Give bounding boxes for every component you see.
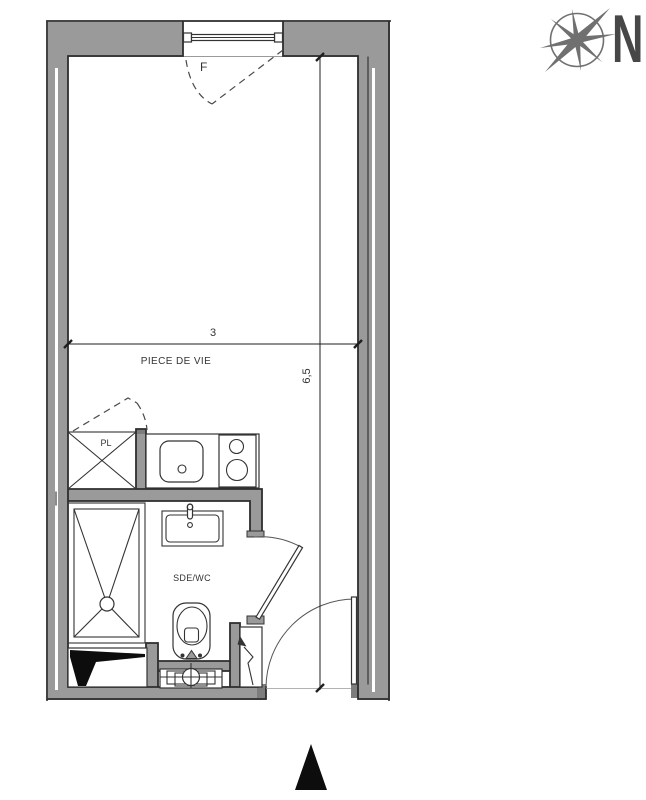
window-label: F [200,60,207,74]
dimension-width: 3 [64,327,362,348]
north-label: N [612,1,643,77]
window-end-block [275,33,283,42]
basin-drain [188,523,193,528]
shower [68,503,145,643]
shower-fold-lines [74,509,139,637]
closet-label: PL [100,438,111,448]
walls [48,22,390,700]
bath-door-jamb-top [247,531,264,537]
north-compass: N [540,1,643,77]
wall-entry-closet [230,623,240,687]
bath-door-leaf [256,546,303,620]
washbasin [162,504,223,546]
wall-stripe-right [372,68,375,692]
wall-outlines [47,21,390,700]
floor-plan-canvas: F PL [0,0,646,800]
wall-stub-closet-kitchen [136,429,146,489]
kitchen-sink [160,441,203,482]
kitchen-hob [219,435,256,487]
kitchen-counter [146,434,259,488]
wall-toilet-nook [146,643,158,687]
bathroom-label: SDE/WC [173,573,211,583]
entrance-door-leaf [352,597,357,684]
bath-door-arc [254,537,301,547]
entrance-door [266,597,357,689]
basin-inner [166,515,219,542]
entrance-zone [238,627,263,687]
wall-stripe-left [55,68,58,690]
floor-plan: F PL [0,0,646,800]
toilet [173,603,210,659]
entrance-marker-triangle [295,744,327,790]
shower-tray-inner [74,509,139,637]
dimension-width-value: 3 [210,327,216,339]
wall-bottom [48,687,266,700]
dimension-depth: 6,5 [301,53,324,692]
wall-partition-bathroom [68,489,262,501]
window-end-block [184,33,192,42]
toilet-bolt [181,654,185,658]
bathroom-door [254,537,303,619]
technical-shaft [68,648,147,687]
shower-drain [100,597,114,611]
entrance-door-arc [266,599,355,688]
toilet-bolt [198,654,202,658]
window-swing-dashed [186,50,283,104]
dimension-depth-value: 6,5 [301,368,313,383]
closet-swing-dashed [73,398,147,431]
living-room-label: PIECE DE VIE [141,356,211,367]
basin-tap [188,504,193,519]
